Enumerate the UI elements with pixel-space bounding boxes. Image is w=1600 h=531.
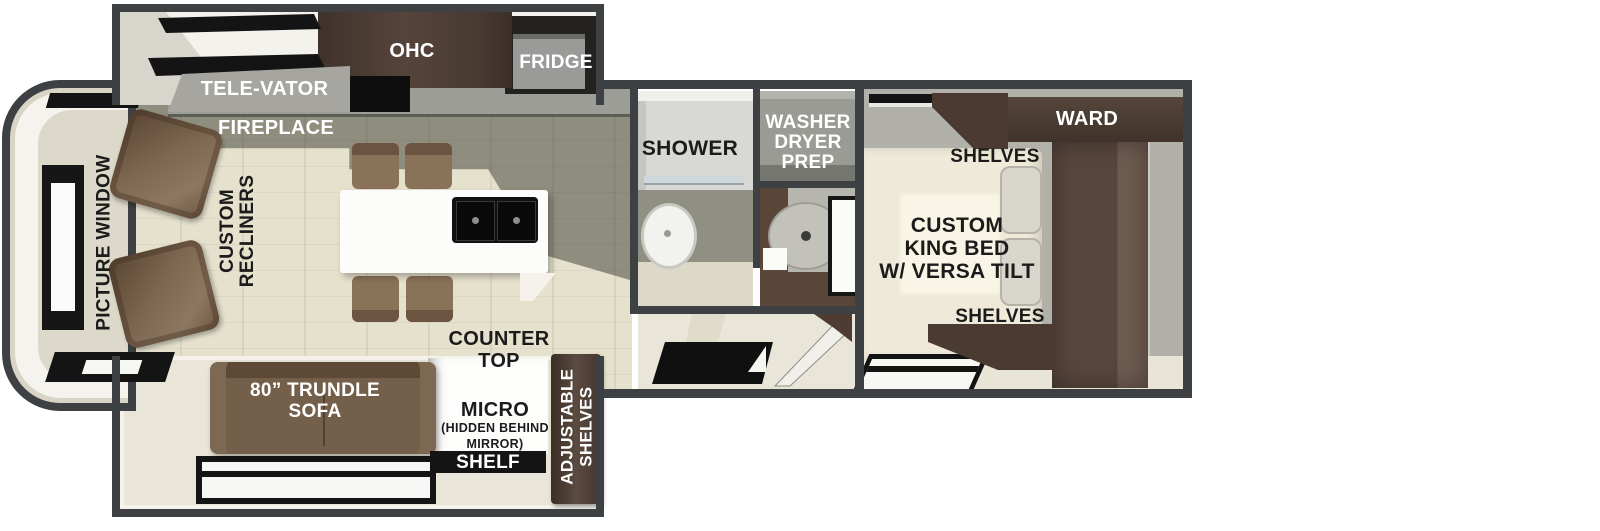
washer-prep-label: WASHER DRYER PREP — [748, 113, 868, 173]
micro-note-label: (HIDDEN BEHIND MIRROR) — [428, 421, 562, 452]
dining-chair — [405, 143, 452, 189]
wall-bath-bottom — [630, 306, 863, 314]
fireplace-label: FIREPLACE — [206, 117, 346, 139]
sink-bowl-right — [497, 201, 536, 241]
drain-dot — [664, 230, 671, 237]
slat-window-1 — [158, 14, 321, 33]
faucet-dot — [472, 217, 479, 224]
recliners-label: CUSTOM RECLINERS — [218, 156, 258, 306]
island-peninsula — [518, 271, 558, 303]
wall-washer-bottom — [753, 181, 862, 188]
micro-label: MICRO — [435, 399, 555, 421]
wall-top — [596, 80, 1192, 89]
toilet-drain — [801, 231, 811, 241]
wall-bottom — [596, 389, 1192, 398]
dining-chair — [352, 276, 399, 322]
bedroom-corner-cabinet-top — [928, 91, 1010, 151]
picture-window-label: PICTURE WINDOW — [93, 148, 114, 338]
trundle-sofa-label: 80” TRUNDLE SOFA — [240, 380, 390, 423]
wall-bath-left — [630, 86, 638, 314]
shelves-bottom-label: SHELVES — [950, 306, 1050, 327]
floorplan: TELE-VATOR FIREPLACE OHC FRIDGE PICTURE … — [0, 0, 1600, 531]
adjustable-shelves-label: ADJUSTABLE SHELVES — [558, 352, 595, 502]
toilet-tank — [763, 248, 787, 270]
wall-galley-top — [112, 4, 604, 12]
shower-label: SHOWER — [630, 137, 750, 161]
entry-area — [638, 308, 858, 393]
wall-galley-left — [112, 4, 120, 105]
wall-sofa-slide-right — [596, 356, 604, 517]
counter-top-label: COUNTER TOP — [434, 328, 564, 373]
televator-label: TELE-VATOR — [192, 78, 337, 100]
island-peninsula-shape — [520, 273, 556, 301]
slideout-window — [196, 456, 436, 504]
corner-cabinet-shape — [932, 93, 1008, 149]
bedroom-shelf-unit — [926, 320, 1060, 372]
island-sink — [452, 197, 538, 243]
picture-window — [42, 165, 84, 330]
wall-right — [1183, 80, 1192, 398]
shower-shelf — [644, 176, 744, 183]
fridge-label: FRIDGE — [506, 52, 606, 73]
shelf-unit-shape — [928, 324, 1056, 370]
cap-bottom-window — [45, 352, 175, 382]
shelves-top-label: SHELVES — [945, 146, 1045, 167]
faucet-dot — [513, 217, 520, 224]
wall-sofa-slide-left — [112, 356, 120, 517]
wardrobe-side — [1052, 142, 1148, 388]
dining-chair — [406, 276, 453, 322]
king-bed-label: CUSTOM KING BED W/ VERSA TILT — [857, 214, 1057, 283]
ward-label: WARD — [1037, 108, 1137, 130]
vanity-sink — [641, 203, 697, 269]
picture-window-pane — [51, 183, 75, 311]
shelf-label: SHELF — [438, 452, 538, 473]
wall-sofa-slide-bottom — [112, 509, 604, 517]
ohc-label: OHC — [362, 40, 462, 62]
dining-chair — [352, 143, 399, 189]
wall-toilet-divider — [753, 188, 760, 268]
sink-bowl-left — [456, 201, 495, 241]
vanity-counter — [638, 262, 753, 306]
entry-wall-stub — [686, 314, 726, 342]
